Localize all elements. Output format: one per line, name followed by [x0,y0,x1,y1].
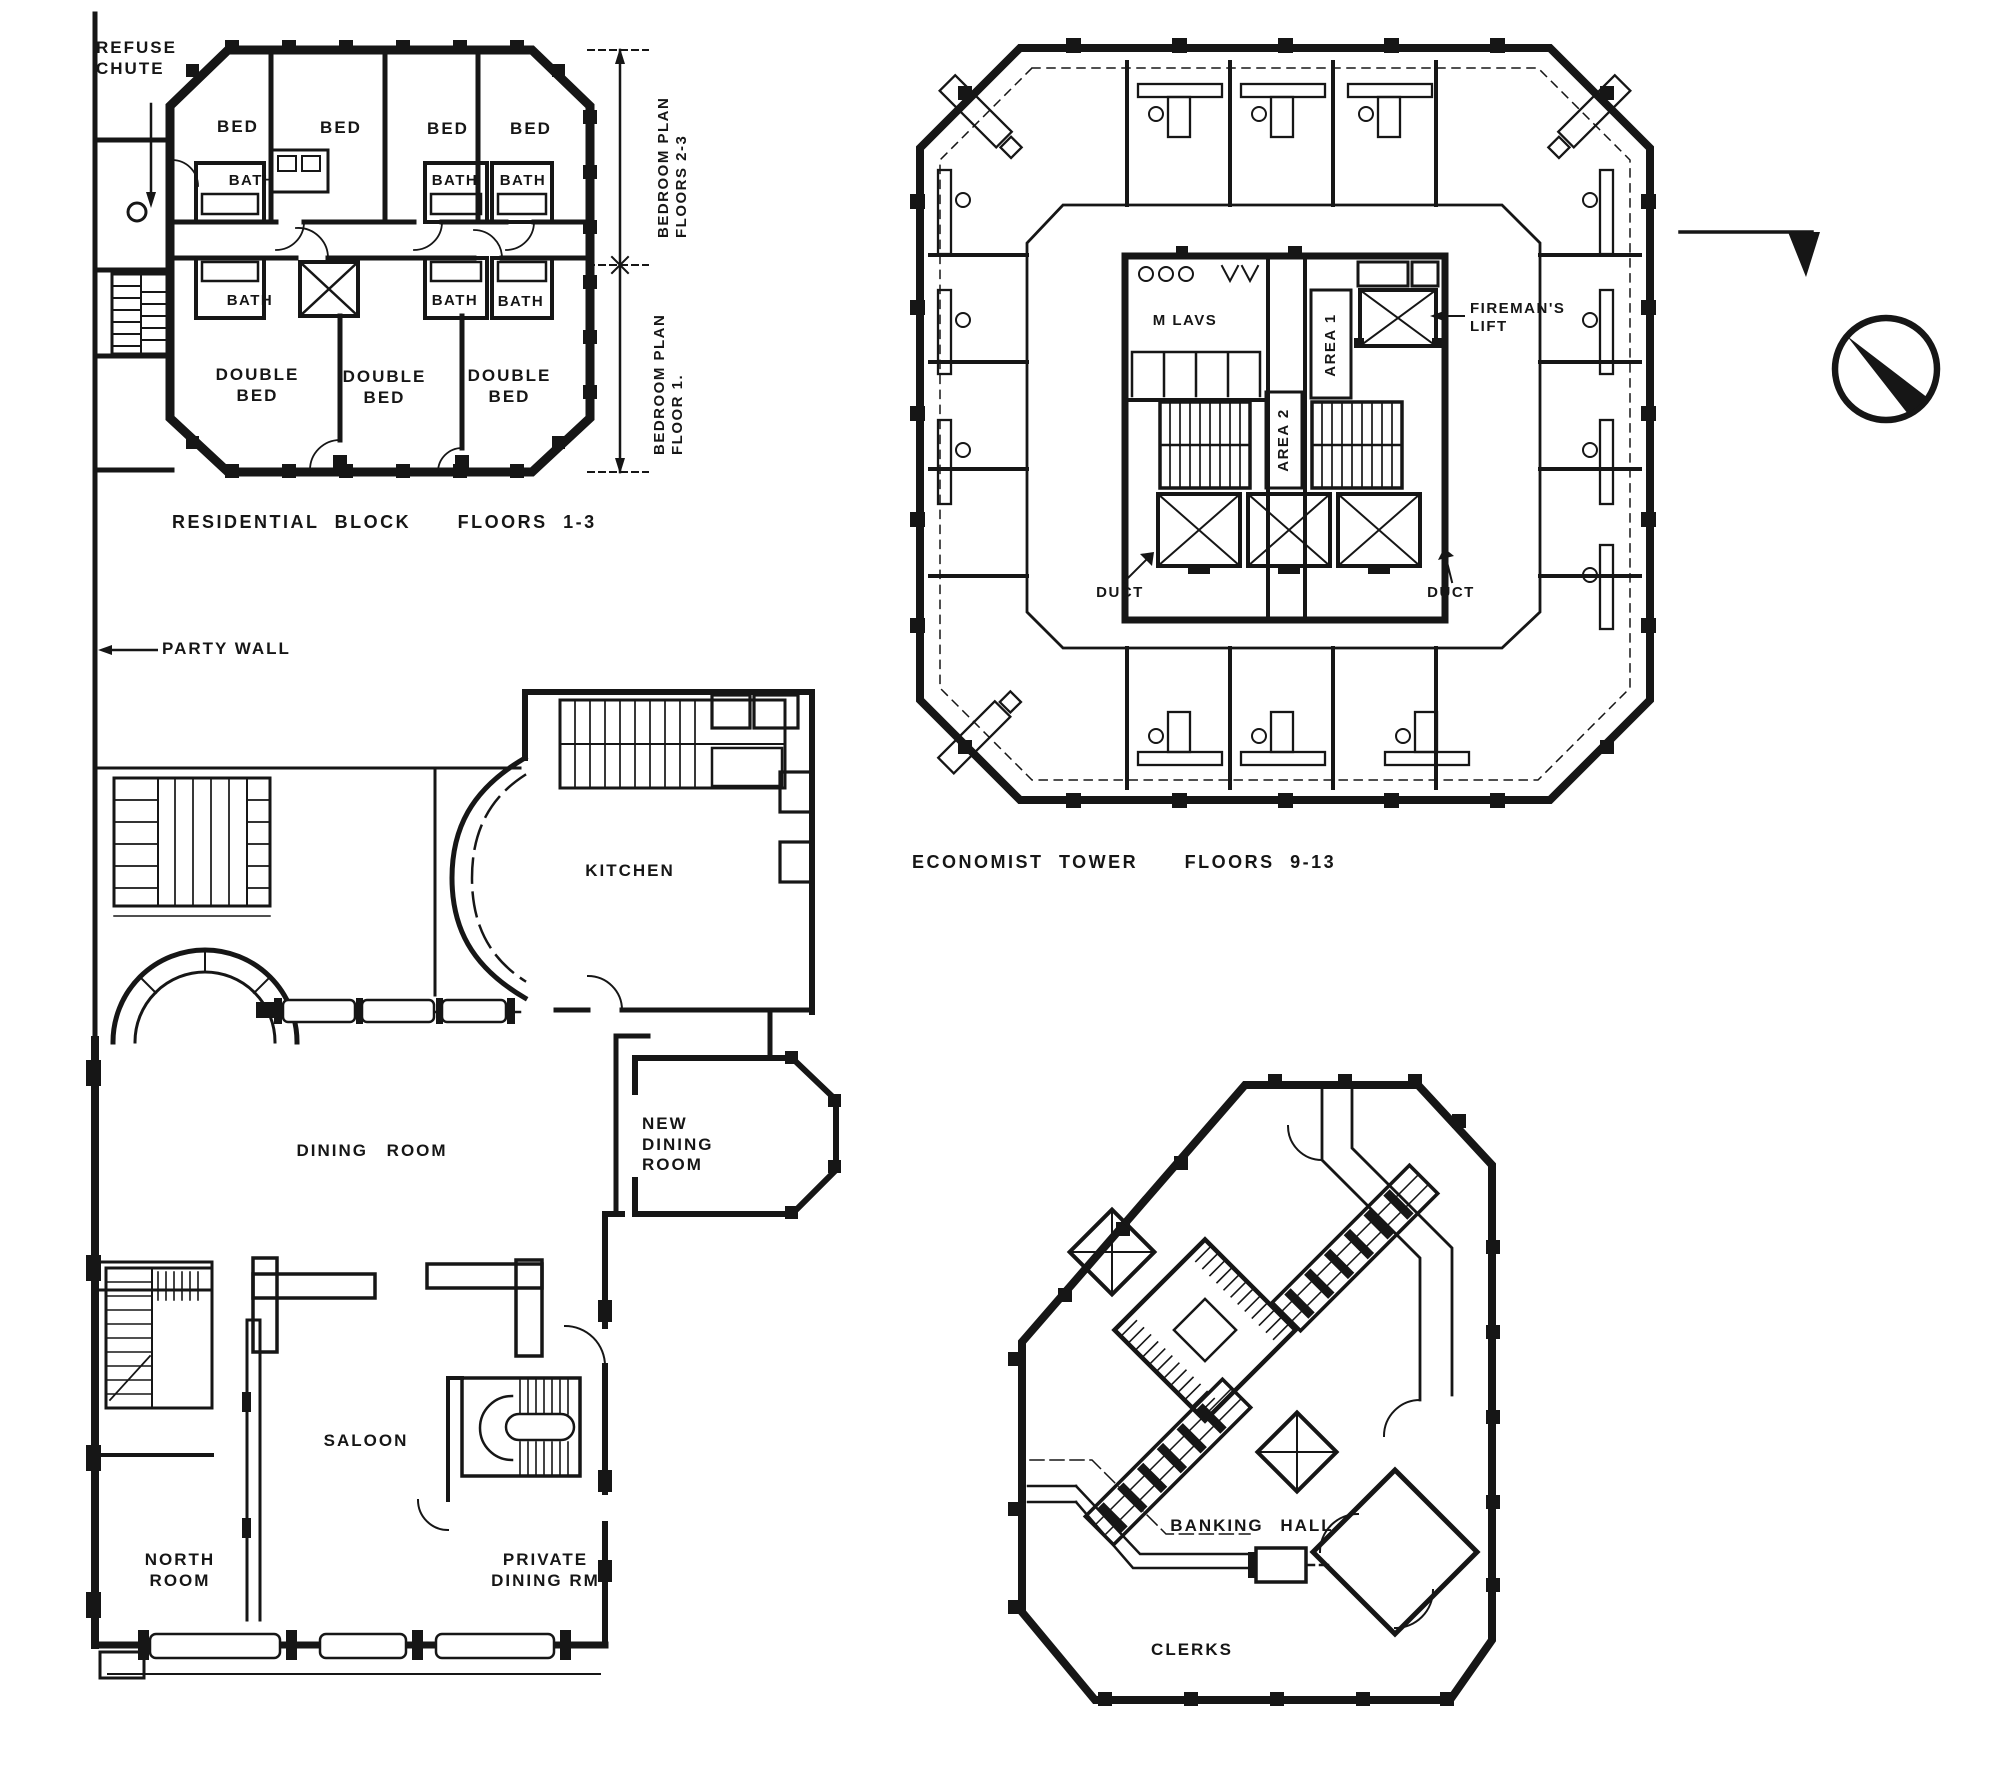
duct-right-label: DUCT [1416,584,1486,602]
clerks-label: CLERKS [1137,1640,1247,1661]
banking-hall-label: BANKING HALL [1137,1516,1367,1537]
dining-room-label: DINING ROOM [282,1141,462,1162]
firemans-lift-label: FIREMAN'S LIFT [1470,300,1590,337]
m-lavs-label: M LAVS [1130,312,1240,330]
area-2-label: AREA 2 [1275,395,1293,485]
kitchen-label: KITCHEN [570,861,690,882]
north-room-label: NORTH ROOM [130,1550,230,1591]
party-wall-arrow-icon [0,0,2000,1766]
economist-tower-caption: ECONOMIST TOWER FLOORS 9-13 [912,852,1372,874]
duct-left-label: DUCT [1085,584,1155,602]
saloon-label: SALOON [311,1431,421,1452]
plan-sheet: REFUSE CHUTE BED BED BED BED BATH BATH B… [0,0,2000,1766]
new-dining-room-label: NEW DINING ROOM [642,1114,752,1176]
area-1-label: AREA 1 [1322,300,1340,390]
private-dining-label: PRIVATE DINING RM [478,1550,613,1591]
